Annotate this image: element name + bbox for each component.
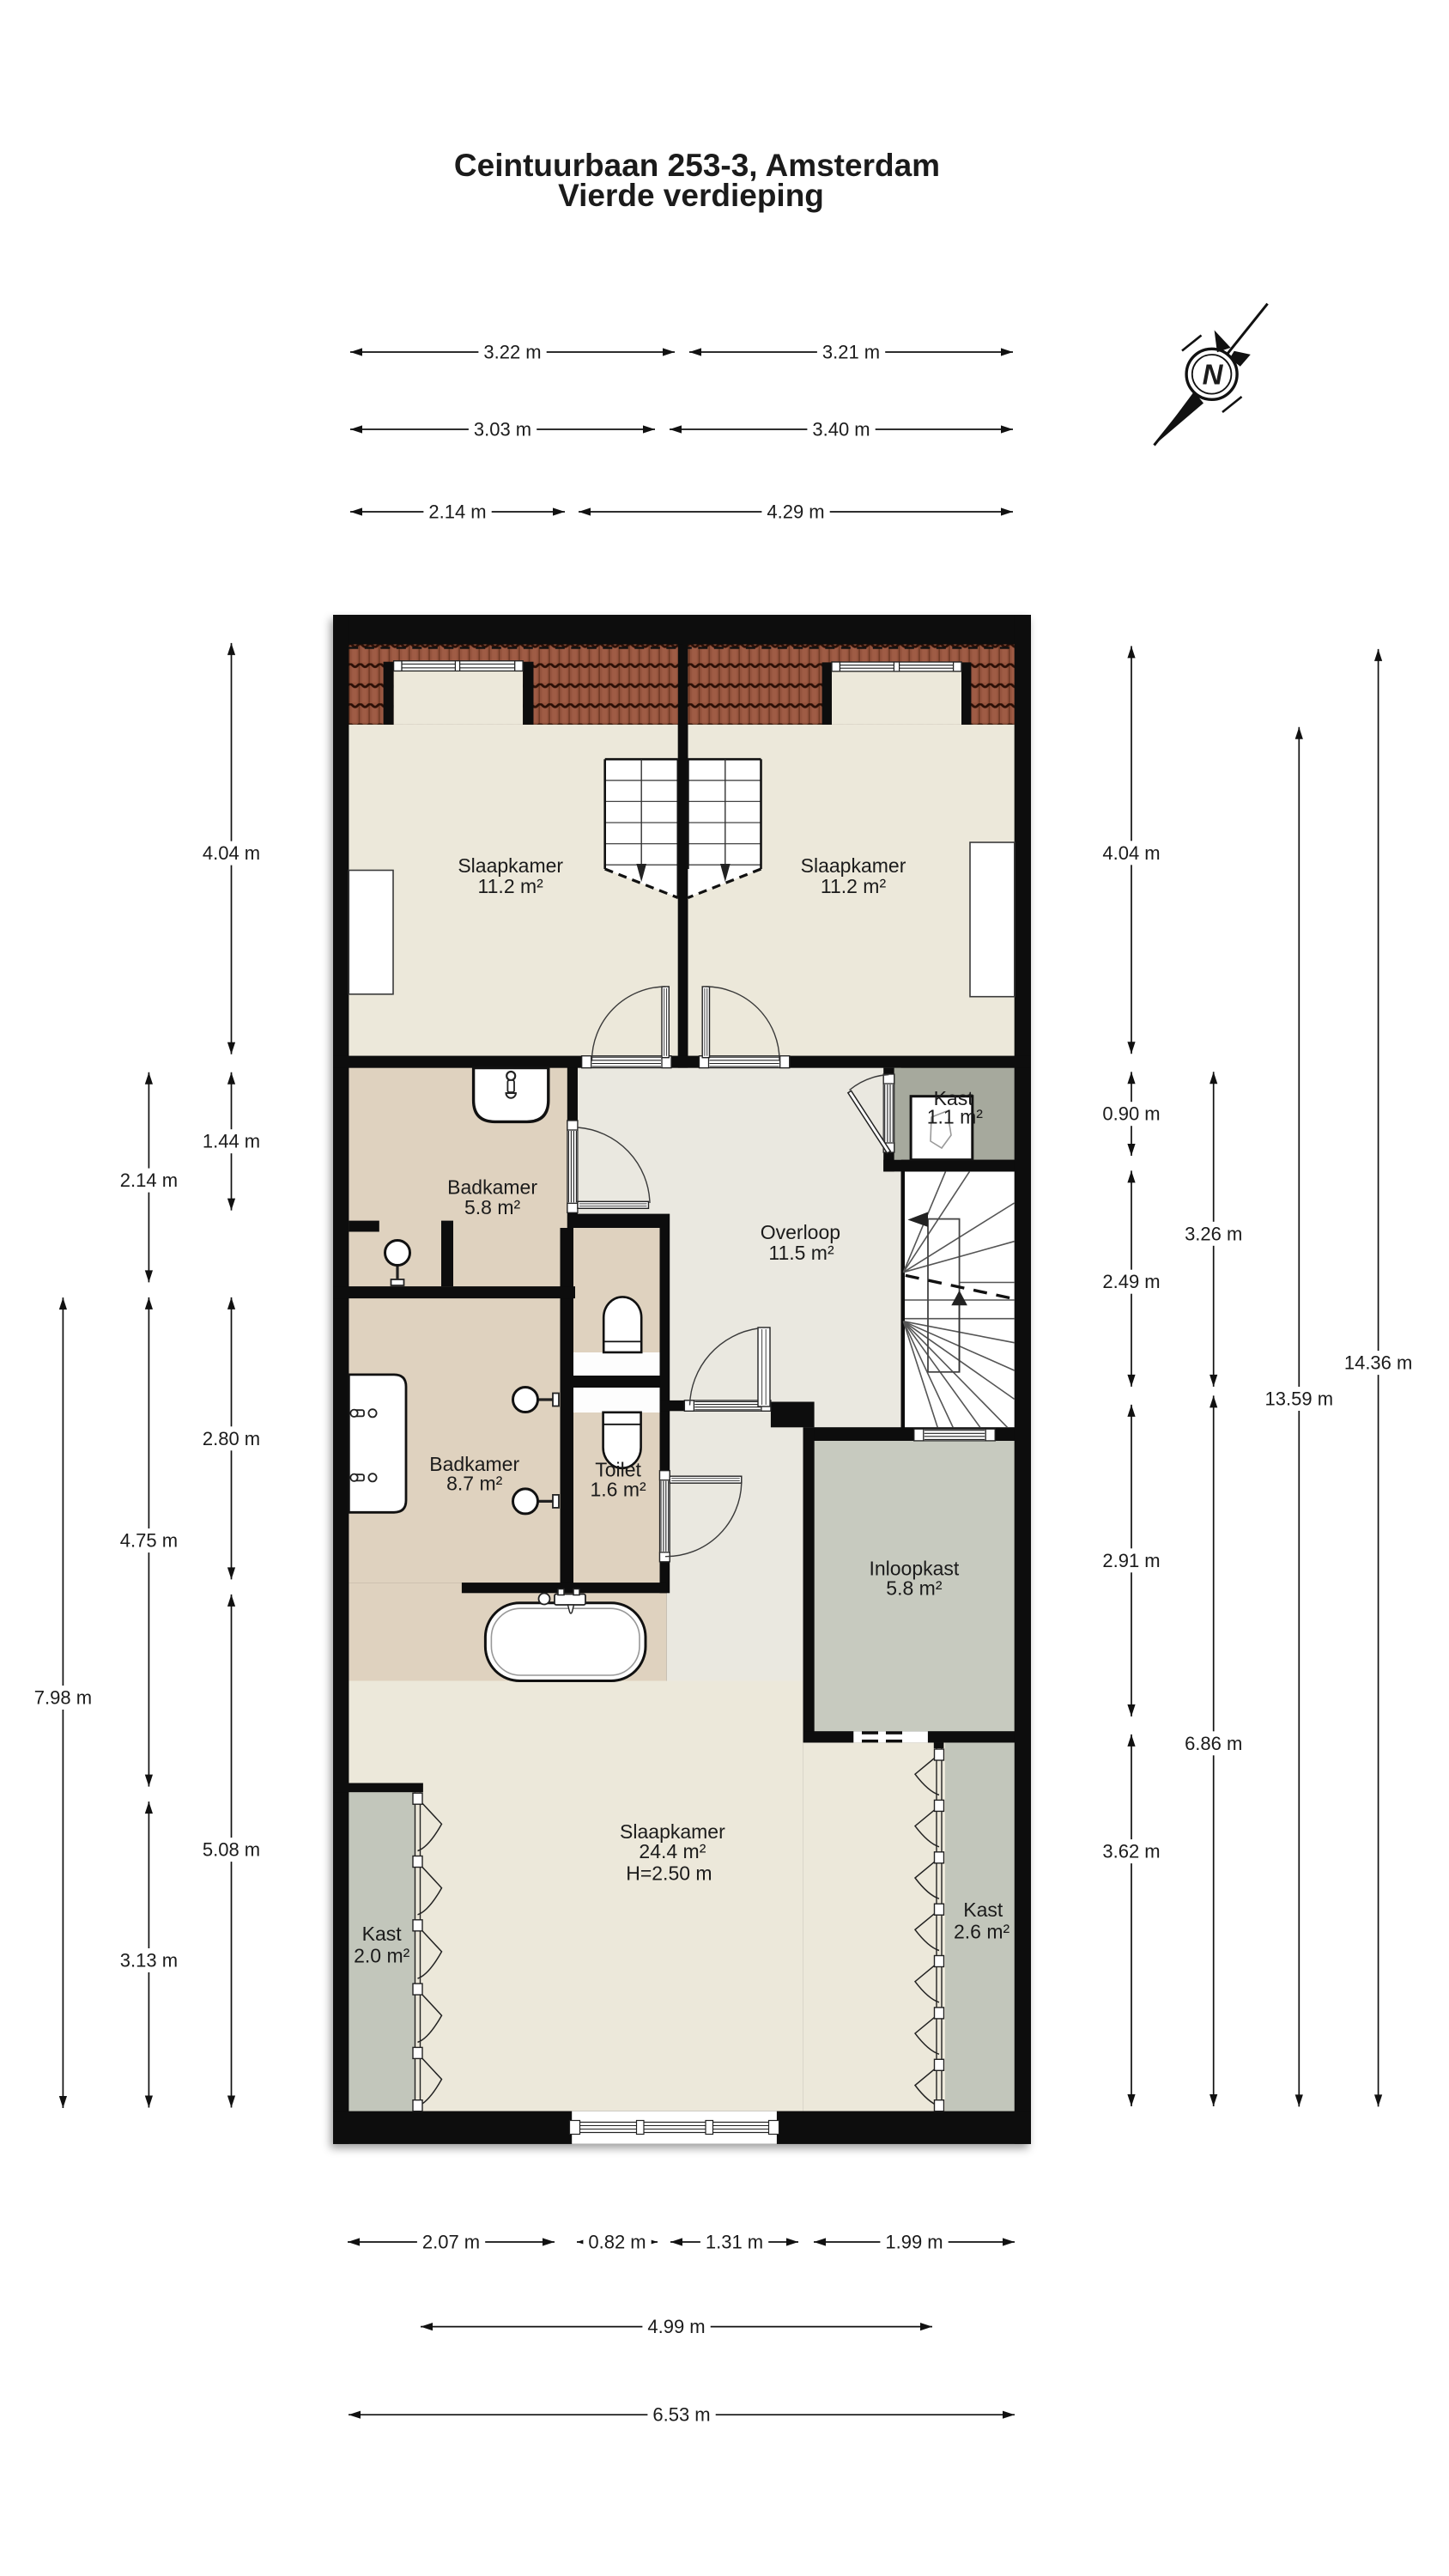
svg-text:Kast: Kast: [362, 1923, 403, 1945]
svg-text:1.1 m²: 1.1 m²: [927, 1106, 984, 1128]
svg-text:4.99 m: 4.99 m: [647, 2316, 705, 2337]
svg-text:24.4 m²: 24.4 m²: [639, 1840, 706, 1862]
svg-text:3.22 m: 3.22 m: [483, 342, 541, 363]
svg-text:2.6 m²: 2.6 m²: [954, 1920, 1010, 1942]
svg-text:5.8 m²: 5.8 m²: [464, 1196, 521, 1218]
svg-text:1.44 m: 1.44 m: [203, 1131, 260, 1152]
svg-text:2.91 m: 2.91 m: [1102, 1550, 1160, 1571]
svg-text:7.98 m: 7.98 m: [34, 1687, 92, 1709]
svg-text:2.80 m: 2.80 m: [203, 1428, 260, 1449]
svg-text:0.90 m: 0.90 m: [1102, 1103, 1160, 1125]
svg-text:13.59 m: 13.59 m: [1265, 1388, 1334, 1410]
svg-text:6.86 m: 6.86 m: [1185, 1733, 1242, 1754]
svg-text:Slaapkamer: Slaapkamer: [801, 854, 906, 877]
svg-text:11.5 m²: 11.5 m²: [768, 1242, 834, 1264]
svg-text:Badkamer: Badkamer: [447, 1176, 537, 1198]
svg-text:2.0 m²: 2.0 m²: [354, 1945, 410, 1967]
svg-text:0.82 m: 0.82 m: [588, 2232, 646, 2253]
svg-text:Kast: Kast: [963, 1899, 1003, 1921]
svg-text:11.2 m²: 11.2 m²: [821, 875, 887, 897]
svg-text:Vierde verdieping: Vierde verdieping: [558, 178, 824, 213]
svg-text:Overloop: Overloop: [761, 1221, 840, 1243]
svg-text:6.53 m: 6.53 m: [652, 2404, 710, 2426]
svg-text:Slaapkamer: Slaapkamer: [458, 854, 563, 877]
svg-text:2.07 m: 2.07 m: [422, 2232, 480, 2253]
svg-text:4.29 m: 4.29 m: [767, 501, 824, 523]
svg-text:14.36 m: 14.36 m: [1344, 1352, 1413, 1374]
svg-text:2.14 m: 2.14 m: [428, 501, 486, 523]
svg-text:4.04 m: 4.04 m: [203, 842, 260, 864]
svg-text:4.04 m: 4.04 m: [1102, 842, 1160, 864]
svg-text:2.49 m: 2.49 m: [1102, 1271, 1160, 1292]
svg-text:5.08 m: 5.08 m: [203, 1839, 260, 1861]
svg-text:1.99 m: 1.99 m: [885, 2232, 943, 2253]
svg-text:1.6 m²: 1.6 m²: [591, 1479, 647, 1501]
svg-text:H=2.50 m: H=2.50 m: [626, 1862, 712, 1884]
svg-text:N: N: [1203, 359, 1224, 391]
svg-text:4.75 m: 4.75 m: [120, 1530, 178, 1552]
svg-text:3.62 m: 3.62 m: [1102, 1841, 1160, 1862]
svg-text:3.26 m: 3.26 m: [1185, 1223, 1242, 1244]
svg-text:Toilet: Toilet: [595, 1458, 641, 1480]
svg-text:2.14 m: 2.14 m: [120, 1170, 178, 1191]
svg-text:5.8 m²: 5.8 m²: [886, 1577, 943, 1599]
svg-text:3.03 m: 3.03 m: [474, 419, 531, 440]
svg-text:3.40 m: 3.40 m: [812, 419, 870, 440]
svg-text:3.13 m: 3.13 m: [120, 1950, 178, 1971]
svg-text:11.2 m²: 11.2 m²: [478, 875, 544, 897]
svg-text:8.7 m²: 8.7 m²: [446, 1473, 503, 1495]
svg-text:1.31 m: 1.31 m: [706, 2232, 763, 2253]
svg-text:3.21 m: 3.21 m: [822, 342, 880, 363]
